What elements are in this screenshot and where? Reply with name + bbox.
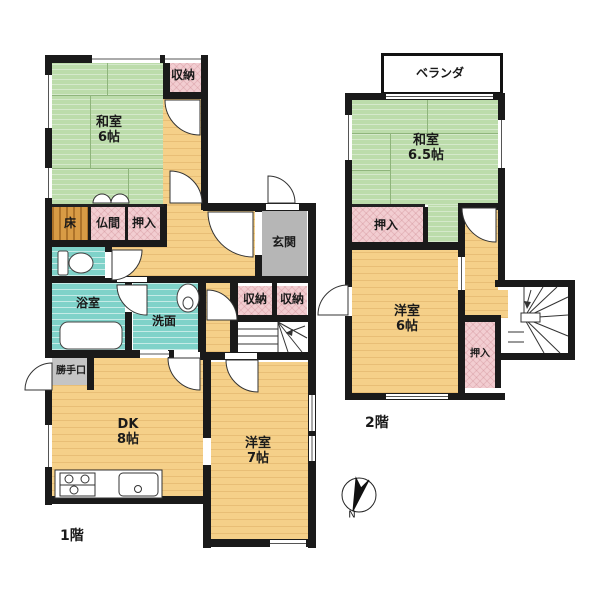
door-arc	[170, 171, 202, 203]
toilet-icon	[58, 251, 93, 275]
label-floor1: 1階	[60, 528, 84, 544]
label-dk: DK 8帖	[117, 418, 139, 448]
door-arc	[462, 208, 496, 242]
door-arc	[168, 358, 200, 390]
stairs-2f	[508, 287, 568, 353]
door-arc	[208, 212, 253, 257]
door-arc	[111, 194, 129, 203]
label-tokonoma: 床	[64, 217, 76, 231]
label-north: N	[348, 509, 355, 521]
label-storage-b: 収納	[280, 293, 304, 307]
stairs-1f	[238, 322, 307, 352]
door-arc	[93, 194, 111, 203]
label-storage-a: 収納	[243, 293, 267, 307]
backdoor-arc	[25, 363, 52, 390]
bathtub-icon	[60, 322, 122, 349]
stairs-1f-arrow	[286, 329, 293, 336]
label-washitsu-65: 和室 6.5帖	[408, 134, 444, 164]
label-yoshitsu-6: 洋室 6帖	[394, 305, 420, 335]
label-oshiire-2f-right: 押入	[470, 348, 490, 360]
label-veranda: ベランダ	[416, 67, 464, 81]
label-genkan: 玄関	[272, 236, 296, 250]
label-washitsu-6: 和室 6帖	[96, 116, 122, 146]
label-katteguchi: 勝手口	[56, 365, 86, 377]
entrance-door-arc	[268, 176, 295, 203]
label-storage-top: 収納	[171, 69, 195, 83]
label-oshiire-2f-top: 押入	[374, 219, 398, 233]
label-oshiire-1f: 押入	[132, 217, 156, 231]
kitchen-counter-icon	[55, 470, 162, 498]
label-floor2: 2階	[365, 415, 389, 431]
door-arc	[207, 290, 237, 320]
label-senmen: 洗面	[152, 315, 176, 329]
door-arc	[226, 360, 258, 392]
label-butsuma: 仏間	[96, 217, 120, 231]
floorplan-canvas: 和室 6帖 収納 床 仏間 押入 玄関 浴室 洗面 収納 収納 勝手口 DK 8…	[0, 0, 600, 600]
door-arc	[112, 250, 142, 280]
label-bath: 浴室	[76, 297, 100, 311]
door-arc	[117, 285, 147, 315]
sink-icon	[177, 284, 199, 312]
door-arc	[165, 100, 200, 135]
door-arc	[318, 285, 348, 315]
label-yoshitsu-7: 洋室 7帖	[245, 437, 271, 467]
compass-north-icon	[342, 478, 376, 512]
